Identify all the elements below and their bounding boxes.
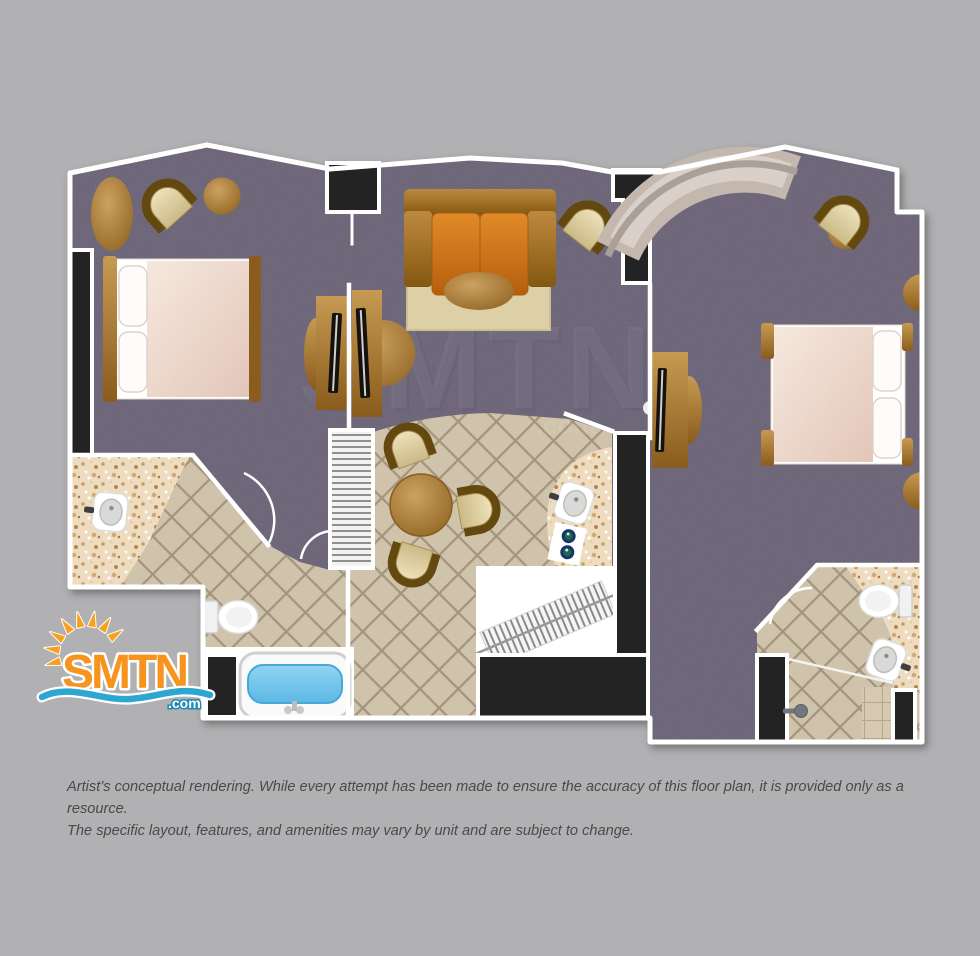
logo-tld-text: .com: [168, 695, 201, 711]
bathtub: [240, 653, 350, 718]
pillow: [119, 266, 147, 326]
shower-grid-floor: [862, 687, 895, 740]
smtn-logo: SMTN .com: [30, 604, 230, 716]
page: SMTN SMTN .com: [0, 0, 980, 956]
pillow: [873, 398, 901, 458]
ottoman: [204, 178, 241, 215]
dining-table: [390, 474, 452, 536]
disclaimer: Artist’s conceptual rendering. While eve…: [67, 776, 927, 842]
left-closet-louver: [330, 430, 373, 568]
bed: [761, 323, 913, 466]
bed: [103, 256, 261, 402]
left-bedroom: [91, 168, 261, 402]
disclaimer-line-1: Artist’s conceptual rendering. While eve…: [67, 776, 927, 820]
side-table: [91, 177, 133, 251]
coffee-table: [444, 272, 514, 310]
pillow: [119, 332, 147, 392]
toilet: [859, 585, 912, 618]
pillow: [873, 331, 901, 391]
disclaimer-line-2: The specific layout, features, and ameni…: [67, 820, 927, 842]
